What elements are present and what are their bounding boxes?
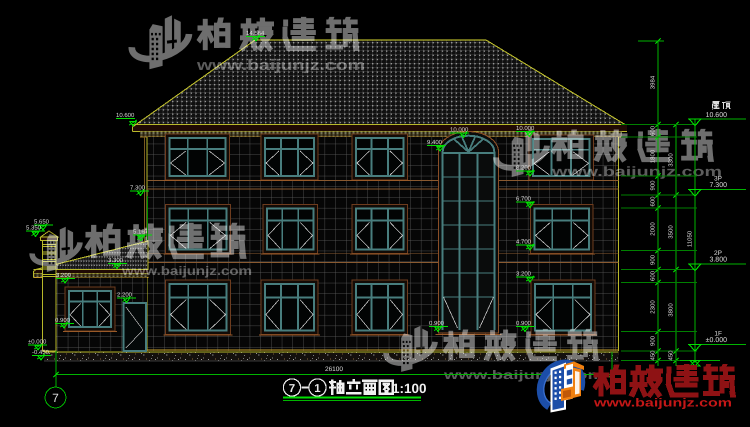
svg-text:2P: 2P [714,250,722,257]
svg-text:5.167: 5.167 [133,229,149,236]
svg-text:www.baijunjz.com: www.baijunjz.com [121,264,252,278]
svg-text:450: 450 [668,350,675,361]
svg-text:3.800: 3.800 [709,257,727,264]
svg-text:2000: 2000 [650,222,657,236]
svg-text:2300: 2300 [650,300,657,314]
svg-text:900: 900 [650,180,657,191]
svg-text:3500: 3500 [668,225,675,239]
svg-text:9.400: 9.400 [427,139,443,146]
svg-text:0.900: 0.900 [429,320,445,327]
svg-text:26100: 26100 [325,366,343,373]
svg-text:600: 600 [650,196,657,207]
svg-text:1800: 1800 [650,149,657,163]
svg-text:3.200: 3.200 [516,271,532,278]
svg-text:900: 900 [650,335,657,346]
svg-text:3.300: 3.300 [108,257,124,264]
svg-text:11050: 11050 [687,230,694,247]
svg-text:±0.000: ±0.000 [28,339,47,346]
svg-text:600: 600 [650,125,657,136]
svg-text:1F: 1F [714,331,722,338]
svg-text:600: 600 [650,270,657,281]
svg-text:7: 7 [289,383,295,395]
svg-text:7: 7 [52,391,59,405]
svg-text:5.650: 5.650 [34,219,50,226]
svg-text:900: 900 [650,254,657,265]
svg-text:3800: 3800 [668,303,675,317]
svg-text:3P: 3P [714,176,722,183]
svg-text:3300: 3300 [668,153,675,167]
svg-text:www.baijunjz.com: www.baijunjz.com [551,164,722,179]
svg-text:www.baijunjz.com: www.baijunjz.com [593,396,732,410]
svg-text:1:100: 1:100 [392,381,427,396]
svg-text:10.600: 10.600 [116,112,135,119]
svg-text:±0.000: ±0.000 [706,337,727,344]
svg-text:450: 450 [650,350,657,361]
svg-text:3984: 3984 [650,75,657,89]
svg-text:8.200: 8.200 [516,165,532,172]
svg-text:1: 1 [314,383,321,395]
svg-text:7.300: 7.300 [709,182,727,189]
svg-text:www.baijunjz.com: www.baijunjz.com [196,57,365,74]
svg-text:4.700: 4.700 [516,239,532,246]
svg-text:6.700: 6.700 [516,196,532,203]
svg-text:10.600: 10.600 [706,112,728,119]
svg-text:0.900: 0.900 [516,320,532,327]
